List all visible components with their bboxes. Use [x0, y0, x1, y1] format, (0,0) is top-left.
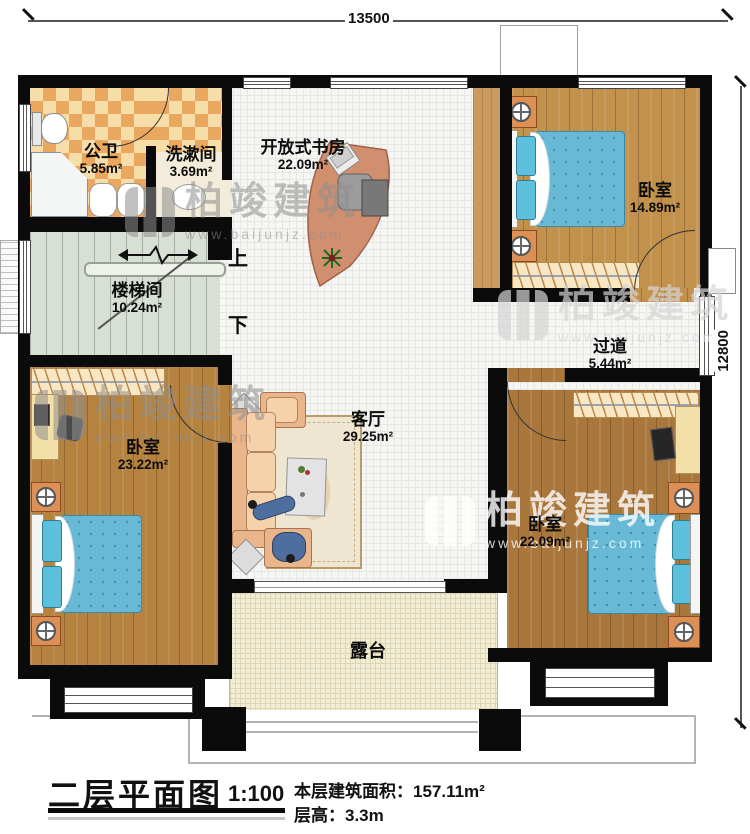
room-label-corridor: 过道 5.44m² — [589, 338, 632, 372]
monitor-icon — [34, 404, 50, 426]
wall-bedroom-br-bottom — [488, 648, 712, 662]
monitor-icon — [362, 180, 388, 216]
bay-window — [545, 668, 655, 698]
eave-line — [694, 715, 696, 763]
floor-area-value: 157.11m² — [413, 782, 485, 801]
room-label-bedroom-bottom-left: 卧室 23.22m² — [118, 439, 168, 473]
washroom-entry — [222, 180, 232, 217]
dimension-line-right — [740, 86, 742, 728]
room-label-bedroom-bottom-right: 卧室 22.09m² — [520, 516, 570, 550]
wall-bedroom-bl-right-top — [218, 355, 232, 385]
washroom-sink-icon — [172, 184, 206, 210]
nightstand — [31, 616, 61, 646]
window — [243, 77, 291, 89]
wall-corridor-bottom-right — [565, 368, 712, 382]
flue-box — [708, 248, 736, 294]
bed-pillow — [516, 136, 536, 176]
eave-line — [521, 715, 695, 717]
dimension-tick — [22, 8, 34, 20]
toilet-bowl-icon — [41, 113, 68, 144]
window — [578, 77, 686, 89]
plan-scale: 1:100 — [228, 781, 284, 807]
sofa-cushion — [246, 452, 276, 492]
eave-line — [188, 715, 190, 763]
window — [330, 77, 468, 89]
person-head — [286, 554, 295, 563]
column — [479, 709, 521, 751]
bay-window — [64, 687, 193, 713]
bed-pillow — [516, 180, 536, 220]
bed-pillow — [672, 520, 692, 560]
terrace-railing-line — [246, 721, 478, 723]
dimension-tick — [721, 8, 733, 20]
chimney-outline — [500, 25, 578, 79]
stair-up-label: 上 — [228, 242, 248, 271]
double-sink-icon — [117, 183, 145, 217]
nightstand — [31, 482, 61, 512]
nightstand-knob — [511, 102, 531, 122]
wall-study-bedroom — [500, 88, 512, 288]
bed-pillow — [672, 564, 692, 604]
title-underline — [48, 808, 285, 813]
wall-living-terrace-pier-right — [444, 579, 507, 593]
floor-height-label: 层高： — [294, 806, 345, 825]
wall-washroom-right — [222, 88, 232, 180]
room-label-bedroom-top-right: 卧室 14.89m² — [630, 182, 680, 216]
door-threshold — [507, 368, 565, 382]
wood-panel — [473, 88, 500, 288]
eave-line — [188, 762, 696, 764]
dimension-right-value: 12800 — [712, 330, 735, 372]
floor-height-info: 层高：3.3m — [294, 801, 384, 826]
room-label-washroom: 洗漱间 3.69m² — [166, 146, 217, 180]
nightstand-knob — [674, 622, 694, 642]
room-label-terrace: 露台 — [350, 642, 386, 662]
wall-bedroom-bl-right — [218, 443, 232, 679]
wall-stair-bottom — [18, 355, 232, 367]
wardrobe — [512, 262, 640, 290]
table-decor — [305, 470, 310, 475]
floor-plan-canvas: 柏竣建筑 www.baijunjz.com 柏竣建筑 www.baijunjz.… — [0, 0, 750, 834]
wall-bedroom-br-left — [488, 368, 507, 593]
terrace-sliding-door — [254, 581, 446, 593]
table-decor — [298, 466, 305, 473]
nightstand — [668, 616, 700, 648]
room-label-stairwell: 楼梯间 10.24m² — [112, 282, 163, 316]
bed-pillow — [42, 566, 62, 608]
wall-living-terrace-pier-left — [218, 579, 254, 593]
wardrobe — [31, 368, 165, 396]
terrace-railing-line — [246, 731, 478, 733]
desk — [675, 406, 701, 474]
nightstand-knob — [674, 488, 694, 508]
room-label-open-study: 开放式书房 22.09m² — [261, 139, 346, 173]
tv-icon — [650, 427, 676, 461]
nightstand-knob — [511, 236, 531, 256]
wall-bedroom-tr-bottom — [473, 288, 630, 302]
floor-area-info: 本层建筑面积：157.11m² — [294, 777, 485, 802]
bed-pillow — [42, 520, 62, 562]
nightstand-knob — [36, 487, 56, 507]
double-sink-icon — [89, 183, 117, 217]
floor-height-value: 3.3m — [345, 806, 384, 825]
plant-pot — [329, 255, 336, 262]
desk-chair-icon — [56, 414, 84, 442]
room-label-living-room: 客厅 29.25m² — [343, 411, 393, 445]
floor-area-label: 本层建筑面积： — [294, 782, 413, 801]
stair-down-label: 下 — [228, 309, 248, 338]
dimension-top-value: 13500 — [345, 10, 393, 27]
column — [202, 707, 246, 751]
title-underline-light — [48, 817, 285, 820]
wall-bedroom-bl-bottom — [18, 665, 232, 679]
wall-bath-divider — [146, 146, 156, 217]
person-head — [248, 500, 257, 509]
nightstand-knob — [36, 621, 56, 641]
room-label-public-bath: 公卫 5.85m² — [80, 143, 123, 177]
window — [19, 104, 31, 172]
window — [19, 240, 31, 334]
nightstand — [668, 482, 700, 514]
wall-bath-bottom — [18, 217, 232, 232]
stair-direction-arrow — [116, 242, 200, 268]
sofa-cushion — [246, 412, 276, 452]
table-decor — [300, 492, 305, 497]
